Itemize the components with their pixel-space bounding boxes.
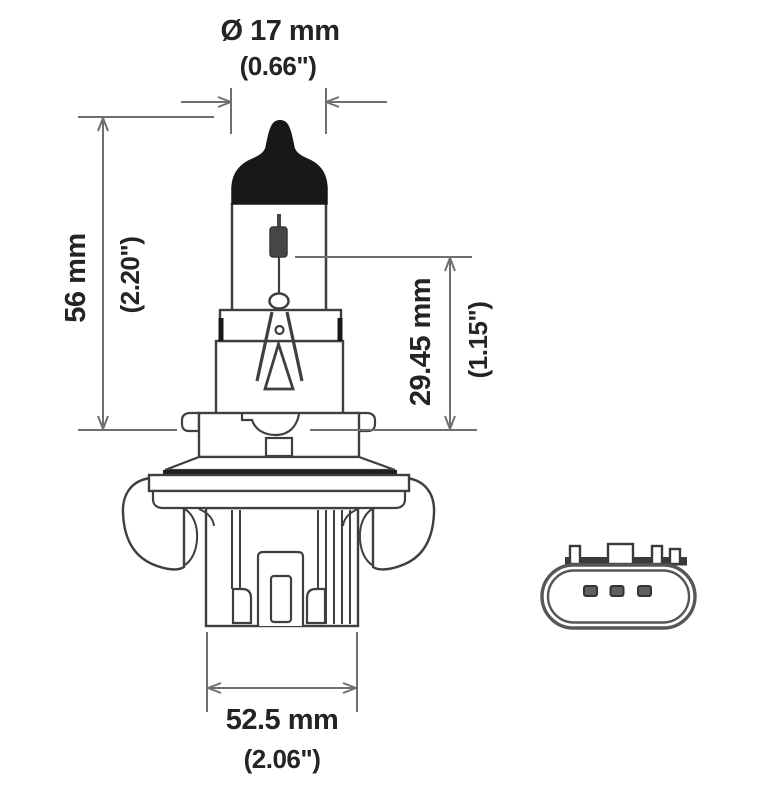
bulb-technical-drawing: Ø 17 mm (0.66") 56 mm (2.20") 29.45 mm (… [0,0,759,800]
dim-line-horizontal [208,683,356,693]
connector-pin-3 [638,586,651,596]
mounting-flange-underside [153,491,405,508]
collar-key-tab [266,438,292,456]
flared-skirt [165,457,395,470]
connector-pin-1 [584,586,597,596]
diameter-metric-label: Ø 17 mm [221,15,340,47]
diameter-imperial-label: (0.66") [240,51,317,81]
filament-height-imperial-label: (1.15") [463,302,493,379]
collar-ear-right [358,413,375,431]
dimension-overall-height [78,117,214,430]
bulb-front-view [123,121,434,626]
connector-tab-4 [670,549,680,564]
arrow-right [326,97,387,107]
technical-drawing-page: Ø 17 mm (0.66") 56 mm (2.20") 29.45 mm (… [0,0,759,800]
collar-tick-right [338,318,343,341]
filament [270,227,287,257]
filament-assembly [270,214,289,309]
filament-bead [270,294,289,309]
mounting-flange-plate [149,475,409,491]
dimension-base-width [207,632,357,712]
base-lug-left [233,589,251,623]
dim-line-vertical [445,258,455,429]
connector-tab-center [608,544,633,564]
filament-height-metric-label: 29.45 mm [405,278,437,406]
dim-line-vertical [98,118,108,429]
overall-height-imperial-label: (2.20") [115,237,145,314]
base-width-imperial-label: (2.06") [244,744,321,774]
connector-tab-3 [652,546,662,564]
connector-tab-1 [570,546,580,564]
wing-curl-right [360,509,372,565]
blackout-tip [232,121,327,204]
collar-tick-left [219,318,224,341]
arrow-left [181,97,231,107]
support-pivot [276,326,284,334]
base-center-slot [271,576,291,622]
collar-ear-left [182,413,199,431]
connector-rear-view [542,544,695,628]
base-lug-right [307,589,325,623]
connector-pin-2 [611,586,624,596]
overall-height-metric-label: 56 mm [60,233,92,322]
wing-curl-left [185,509,197,565]
base-width-metric-label: 52.5 mm [226,704,339,736]
